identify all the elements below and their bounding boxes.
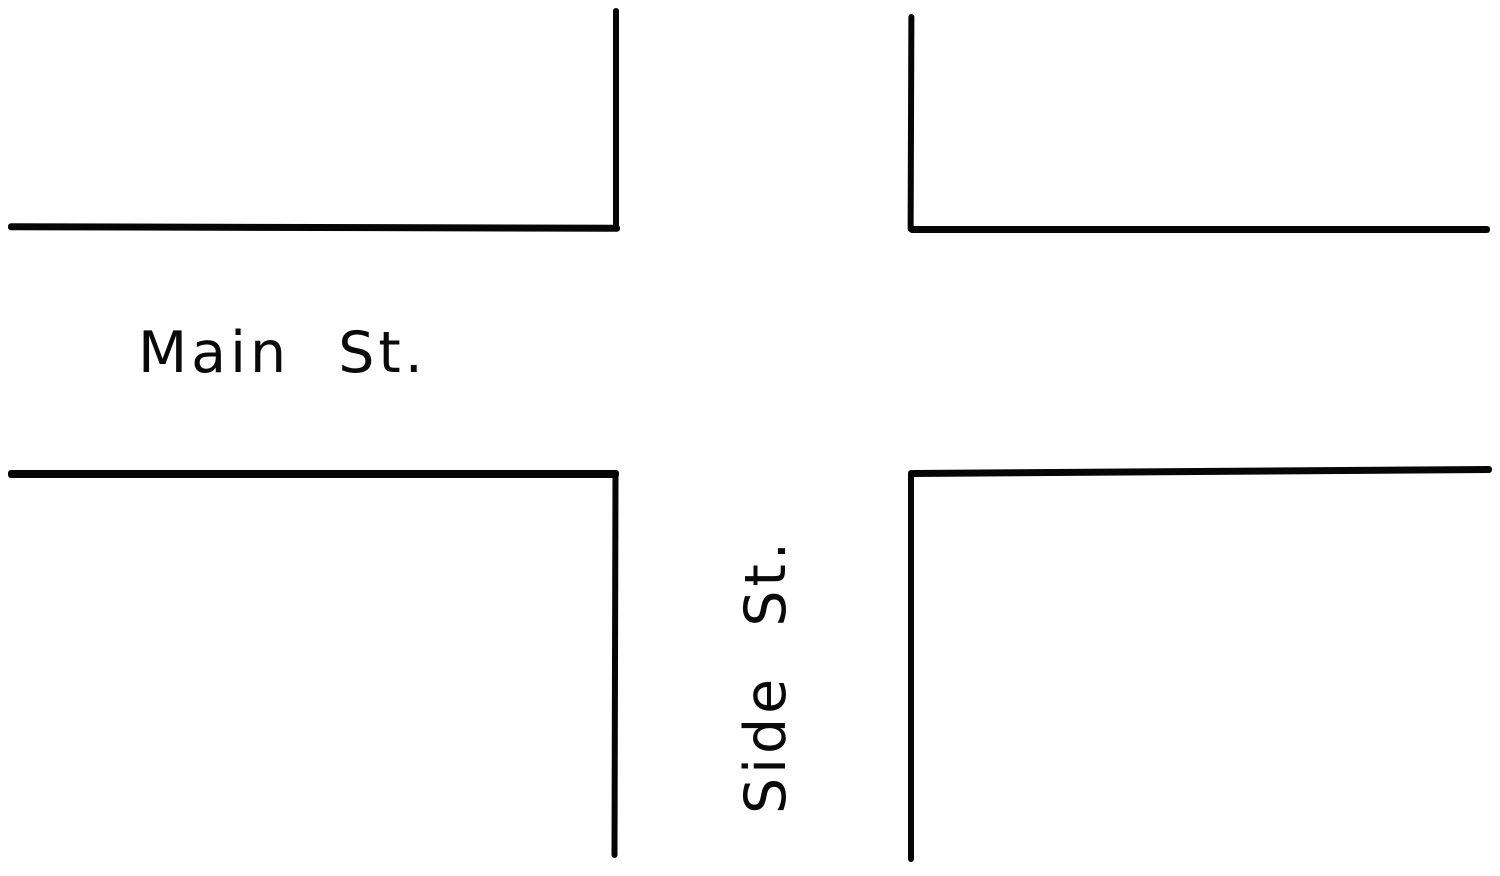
main-street-label: Main St. xyxy=(138,320,427,386)
main-st-north-curb-east-segment xyxy=(909,226,1490,233)
side-street-label: Side St. xyxy=(731,530,801,822)
intersection-diagram: Main St. Side St. xyxy=(0,0,1500,876)
side-st-west-curb-south-segment xyxy=(611,471,618,858)
main-st-north-curb-west-segment xyxy=(8,223,620,232)
main-st-south-curb-east-segment xyxy=(910,466,1492,477)
side-st-east-curb-south-segment xyxy=(908,470,914,862)
side-st-west-curb-north-segment xyxy=(613,8,619,231)
main-st-south-curb-west-segment xyxy=(8,470,619,478)
side-st-east-curb-north-segment xyxy=(908,14,915,232)
